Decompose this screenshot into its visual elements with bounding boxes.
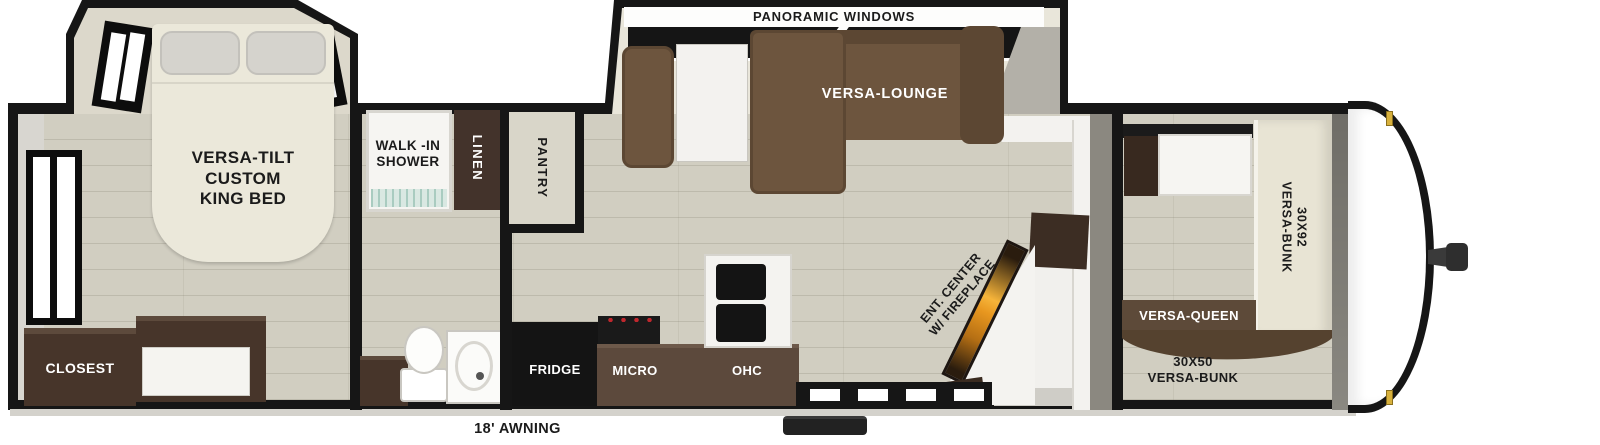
top-wall-left bbox=[8, 103, 70, 114]
marker-light-bottom bbox=[1386, 390, 1393, 405]
king-bed bbox=[152, 24, 334, 262]
bunk-30x92-label: 30X92 VERSA-BUNK bbox=[1278, 127, 1309, 327]
kitchen-sink-counter bbox=[704, 254, 792, 348]
sink-basin-upper bbox=[716, 264, 766, 300]
front-cap bbox=[1348, 101, 1434, 413]
cooktop-knobs bbox=[604, 318, 654, 322]
bedroom-dresser-front bbox=[142, 347, 250, 396]
wall-main-bunk bbox=[1112, 103, 1123, 410]
king-bed-pillow-left bbox=[160, 31, 240, 75]
ohc-label: OHC bbox=[707, 363, 787, 379]
panoramic-windows-label: PANORAMIC WINDOWS bbox=[624, 9, 1044, 25]
toilet-bowl bbox=[404, 326, 444, 374]
shower-glass bbox=[371, 189, 447, 207]
entry-step bbox=[783, 416, 867, 435]
entry-door-pane bbox=[906, 389, 936, 401]
entry-door-pane bbox=[858, 389, 888, 401]
body-lower-edge bbox=[10, 409, 1356, 416]
bunk-cabinet bbox=[1124, 136, 1158, 196]
lounge-armchair bbox=[622, 46, 674, 168]
hitch-coupler bbox=[1446, 243, 1468, 271]
lounge-armrest bbox=[960, 26, 1004, 144]
hitch-stem bbox=[1428, 247, 1448, 267]
marker-light-top bbox=[1386, 111, 1393, 126]
floorplan-scene: CLOSEST VERSA-TILT CUSTOM KING BED WALK … bbox=[0, 0, 1600, 445]
wall-main-bunk-gray bbox=[1090, 114, 1112, 410]
lounge-slide: PANORAMIC WINDOWS VERSA-LOUNGE bbox=[604, 0, 1068, 114]
top-wall-right bbox=[1056, 103, 1352, 114]
entry-door-pane bbox=[810, 389, 840, 401]
linen-label: LINEN bbox=[469, 113, 485, 203]
bath-vanity bbox=[446, 330, 502, 404]
entry-door-pane bbox=[954, 389, 984, 401]
versa-queen-label: VERSA-QUEEN bbox=[1122, 308, 1256, 324]
shower-label: WALK -IN SHOWER bbox=[362, 138, 454, 171]
king-bed-pillow-right bbox=[246, 31, 326, 75]
versa-lounge-label: VERSA-LOUNGE bbox=[800, 86, 970, 104]
lounge-chaise bbox=[750, 30, 846, 194]
bedroom-window-mullion bbox=[50, 157, 57, 318]
closet-label: CLOSEST bbox=[26, 360, 134, 377]
king-bed-seam bbox=[152, 82, 334, 84]
tv-panel bbox=[1029, 213, 1090, 270]
entry-door bbox=[796, 382, 992, 408]
micro-label: MICRO bbox=[600, 363, 670, 379]
bunk-30x50-label: 30X50 VERSA-BUNK bbox=[1126, 354, 1260, 386]
lounge-table bbox=[676, 44, 748, 162]
vanity-sink bbox=[455, 341, 493, 391]
pantry-label: PANTRY bbox=[534, 123, 550, 213]
sink-basin-lower bbox=[716, 304, 766, 342]
bunk-mattress bbox=[1158, 134, 1252, 196]
awning-label: 18' AWNING bbox=[445, 421, 590, 439]
vanity-drain bbox=[476, 372, 484, 380]
king-bed-label: VERSA-TILT CUSTOM KING BED bbox=[155, 148, 331, 210]
fridge-label: FRIDGE bbox=[512, 362, 598, 378]
